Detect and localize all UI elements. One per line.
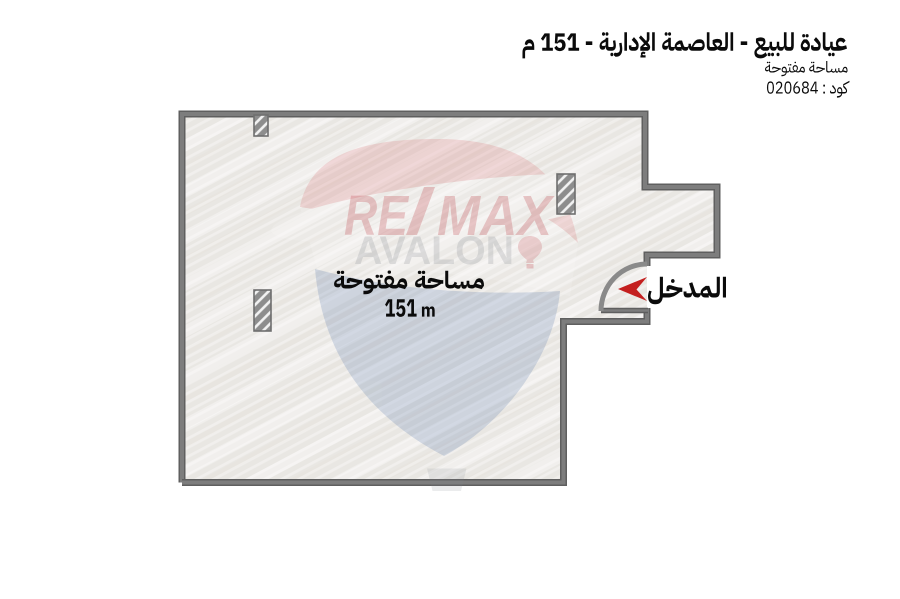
svg-text:AVALON: AVALON: [354, 229, 514, 273]
